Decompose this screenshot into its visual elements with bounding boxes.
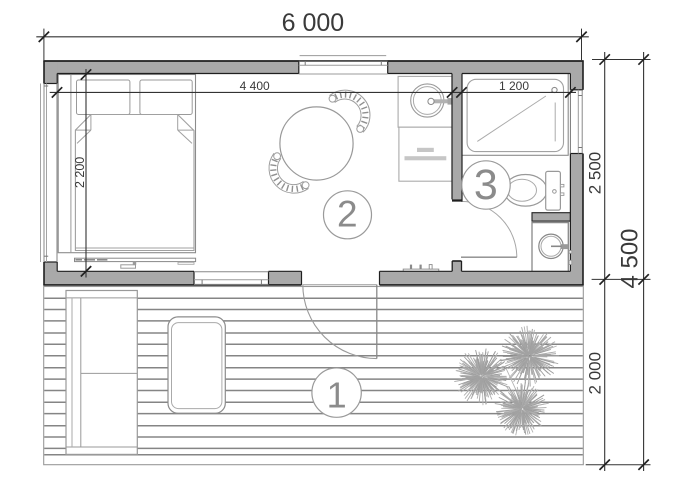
- svg-text:4 500: 4 500: [617, 228, 644, 288]
- svg-text:6 000: 6 000: [282, 9, 345, 37]
- svg-text:2 200: 2 200: [73, 157, 87, 188]
- svg-text:3: 3: [474, 161, 498, 209]
- svg-text:1: 1: [327, 375, 347, 416]
- svg-text:2 500: 2 500: [586, 152, 605, 195]
- svg-text:4 400: 4 400: [240, 79, 270, 93]
- svg-text:2 000: 2 000: [586, 352, 605, 395]
- svg-text:2: 2: [337, 194, 358, 235]
- svg-text:1 200: 1 200: [499, 79, 529, 93]
